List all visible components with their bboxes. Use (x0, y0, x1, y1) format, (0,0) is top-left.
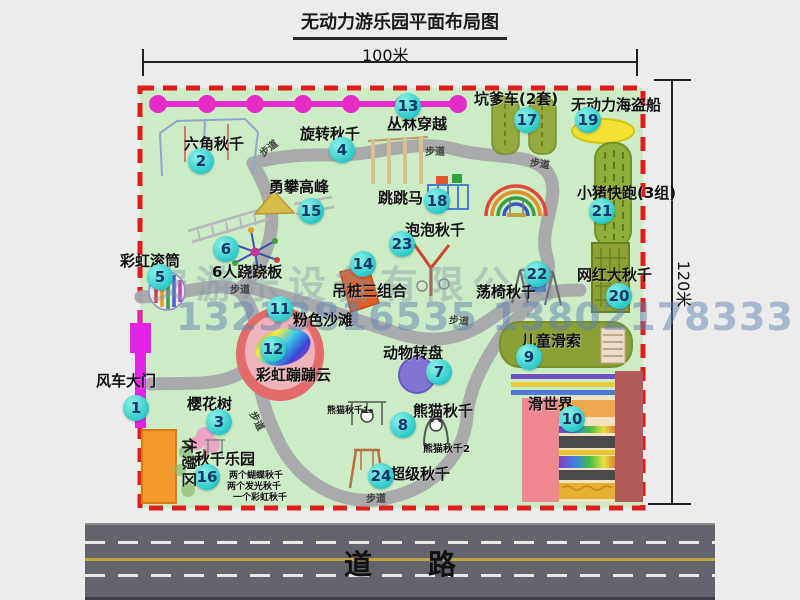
sublabel-swing-detail-3: 一个彩虹秋千 (233, 490, 287, 503)
road-label: 道 路 (85, 543, 715, 583)
badge-2: 2 (188, 148, 214, 174)
badge-10: 10 (559, 406, 585, 432)
badge-5: 5 (147, 264, 173, 290)
label-bubble-swing: 泡泡秋千 (405, 219, 465, 240)
badge-18: 18 (424, 188, 450, 214)
label-piggy-run: 小猪快跑(3组) (577, 182, 676, 203)
label-jungle-crossing: 丛林穿越 (387, 113, 447, 134)
label-seesaw: 6人跷跷板 (212, 261, 282, 282)
page-title: 无动力游乐园平面布局图 (293, 8, 507, 40)
label-kengdie-car: 坑爹车(2套) (474, 88, 558, 109)
label-rainbow-cloud: 彩虹蹦蹦云 (256, 364, 331, 385)
path-label-4: 步道 (230, 281, 250, 296)
sublabel-panda2: 熊猫秋千2 (423, 440, 470, 455)
label-swing-chair: 荡椅秋千 (476, 281, 536, 302)
badge-4: 4 (329, 137, 355, 163)
label-panda-swing: 熊猫秋千 (413, 400, 473, 421)
height-dimension-label: 120米 (673, 254, 697, 314)
badge-3: 3 (206, 409, 232, 435)
page-title-wrap: 无动力游乐园平面布局图 (0, 8, 800, 40)
label-pink-beach: 粉色沙滩 (293, 309, 353, 330)
badge-12: 12 (260, 336, 286, 362)
badge-8: 8 (390, 412, 416, 438)
path-label-2: 步道 (425, 143, 445, 158)
label-climbing-peak: 勇攀高峰 (269, 176, 329, 197)
road: 道 路 (85, 523, 715, 600)
badge-17: 17 (514, 107, 540, 133)
badge-24: 24 (368, 463, 394, 489)
badge-21: 21 (589, 198, 615, 224)
label-hanging-piles: 吊桩三组合 (332, 280, 407, 301)
badge-14: 14 (350, 251, 376, 277)
label-super-swing: 超级秋千 (390, 463, 450, 484)
label-jumping-horse: 跳跳马 (378, 187, 423, 208)
badge-1: 1 (123, 395, 149, 421)
sublabel-panda1: 熊猫秋千1 (327, 403, 369, 416)
badge-23: 23 (389, 231, 415, 257)
label-windmill-gate: 风车大门 (96, 370, 156, 391)
label-big-swing: 网红大秋千 (577, 264, 652, 285)
badge-7: 7 (426, 359, 452, 385)
rest-area-label: 休憩区 (142, 438, 200, 468)
path-label-7: 步道 (366, 490, 386, 505)
badge-11: 11 (267, 296, 293, 322)
badge-22: 22 (524, 261, 550, 287)
badge-19: 19 (575, 107, 601, 133)
badge-13: 13 (395, 93, 421, 119)
badge-20: 20 (606, 283, 632, 309)
width-dimension-label: 100米 (362, 42, 409, 66)
slide-world-icon (511, 371, 643, 502)
badge-15: 15 (298, 198, 324, 224)
path-label-5: 步道 (448, 311, 469, 328)
badge-9: 9 (516, 344, 542, 370)
badge-6: 6 (213, 236, 239, 262)
path-label-3: 步道 (529, 154, 551, 172)
